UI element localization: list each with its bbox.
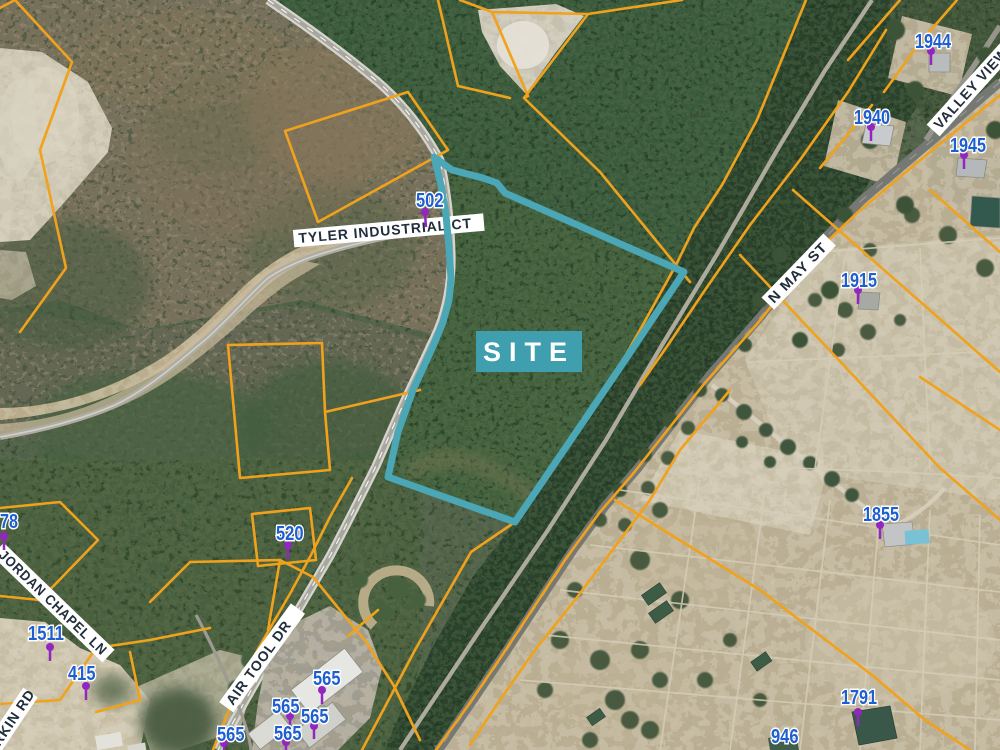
svg-text:415: 415 — [68, 663, 96, 685]
svg-text:78: 78 — [0, 511, 18, 533]
svg-text:502: 502 — [416, 190, 444, 212]
svg-text:520: 520 — [276, 523, 304, 545]
svg-text:1944: 1944 — [915, 31, 952, 53]
svg-text:565: 565 — [313, 668, 341, 690]
svg-text:1945: 1945 — [950, 135, 986, 157]
svg-text:565: 565 — [217, 724, 245, 746]
svg-text:1511: 1511 — [28, 623, 64, 645]
svg-text:1915: 1915 — [841, 270, 877, 292]
svg-text:1855: 1855 — [863, 504, 899, 526]
svg-text:SITE: SITE — [483, 337, 575, 367]
svg-text:946: 946 — [771, 726, 799, 748]
svg-text:565: 565 — [301, 706, 329, 728]
svg-text:1791: 1791 — [841, 687, 877, 709]
svg-text:1940: 1940 — [854, 107, 890, 129]
svg-text:565: 565 — [274, 723, 302, 745]
svg-text:565: 565 — [272, 696, 300, 718]
